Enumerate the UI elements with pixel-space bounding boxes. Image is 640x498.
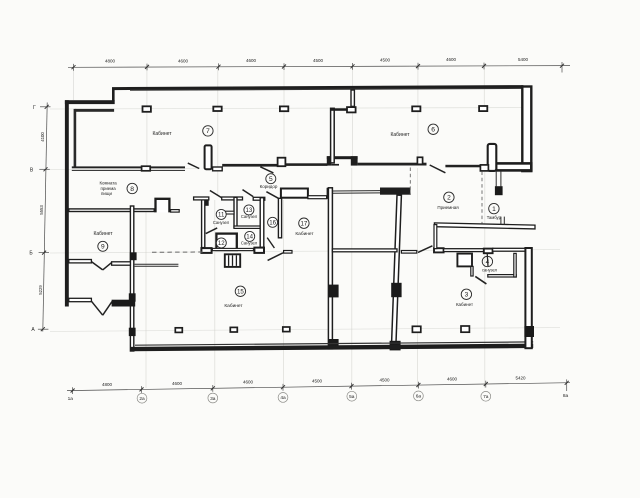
svg-text:9: 9 bbox=[101, 244, 105, 251]
svg-text:12: 12 bbox=[218, 240, 225, 247]
svg-text:4500: 4500 bbox=[380, 58, 391, 63]
svg-text:4600: 4600 bbox=[178, 58, 189, 63]
svg-text:6а: 6а bbox=[416, 394, 422, 400]
svg-text:Санузел: Санузел bbox=[241, 241, 258, 246]
svg-text:3: 3 bbox=[465, 292, 469, 299]
svg-text:7а: 7а bbox=[483, 394, 489, 400]
svg-text:Тамбур: Тамбур bbox=[487, 215, 502, 220]
svg-text:4600: 4600 bbox=[172, 381, 183, 386]
svg-text:4800: 4800 bbox=[105, 59, 116, 64]
svg-text:Кабинет: Кабинет bbox=[295, 231, 314, 237]
svg-text:3а: 3а bbox=[210, 396, 216, 402]
svg-text:11: 11 bbox=[218, 212, 225, 219]
svg-text:Кабинет: Кабинет bbox=[224, 303, 243, 309]
svg-text:Кабинет: Кабинет bbox=[456, 302, 473, 307]
svg-text:4: 4 bbox=[486, 259, 490, 266]
svg-text:Г: Г bbox=[33, 105, 36, 111]
svg-text:4500: 4500 bbox=[313, 58, 324, 63]
svg-text:5420: 5420 bbox=[515, 375, 526, 380]
svg-text:4600: 4600 bbox=[243, 380, 254, 385]
svg-text:15: 15 bbox=[237, 289, 244, 296]
svg-text:4800: 4800 bbox=[102, 382, 113, 387]
svg-text:2а: 2а bbox=[139, 396, 145, 402]
svg-text:17: 17 bbox=[301, 221, 308, 228]
svg-text:8а: 8а bbox=[563, 393, 569, 399]
svg-text:1: 1 bbox=[492, 206, 496, 213]
svg-text:16: 16 bbox=[269, 220, 276, 227]
svg-text:5229: 5229 bbox=[38, 285, 43, 295]
svg-text:Кабинет: Кабинет bbox=[93, 231, 113, 237]
svg-text:4100: 4100 bbox=[40, 132, 45, 142]
svg-text:Санузел: Санузел bbox=[213, 220, 230, 225]
svg-text:7: 7 bbox=[206, 128, 210, 135]
svg-text:приема: приема bbox=[101, 186, 117, 191]
svg-text:4600: 4600 bbox=[447, 377, 458, 382]
svg-text:Кабинет: Кабинет bbox=[152, 131, 172, 137]
svg-text:Приемная: Приемная bbox=[437, 205, 459, 210]
svg-text:6: 6 bbox=[431, 127, 435, 134]
svg-text:8: 8 bbox=[130, 186, 134, 193]
svg-text:5400: 5400 bbox=[518, 57, 529, 62]
svg-text:4600: 4600 bbox=[446, 57, 457, 62]
svg-text:2: 2 bbox=[447, 195, 451, 202]
svg-text:5553: 5553 bbox=[39, 205, 44, 215]
svg-text:4500: 4500 bbox=[379, 378, 390, 383]
svg-text:4а: 4а bbox=[280, 395, 286, 401]
svg-text:5а: 5а bbox=[349, 394, 355, 400]
svg-text:4500: 4500 bbox=[312, 379, 323, 384]
svg-text:пищи: пищи bbox=[101, 191, 112, 196]
svg-text:4600: 4600 bbox=[246, 58, 257, 63]
svg-text:Санузел: Санузел bbox=[241, 214, 258, 219]
svg-text:санузел: санузел bbox=[482, 268, 498, 273]
svg-text:5: 5 bbox=[269, 176, 273, 183]
svg-text:Кабинет: Кабинет bbox=[390, 132, 410, 138]
svg-text:1а: 1а bbox=[68, 396, 74, 402]
svg-text:Комната: Комната bbox=[100, 180, 118, 185]
svg-text:Коридор: Коридор bbox=[260, 184, 278, 189]
